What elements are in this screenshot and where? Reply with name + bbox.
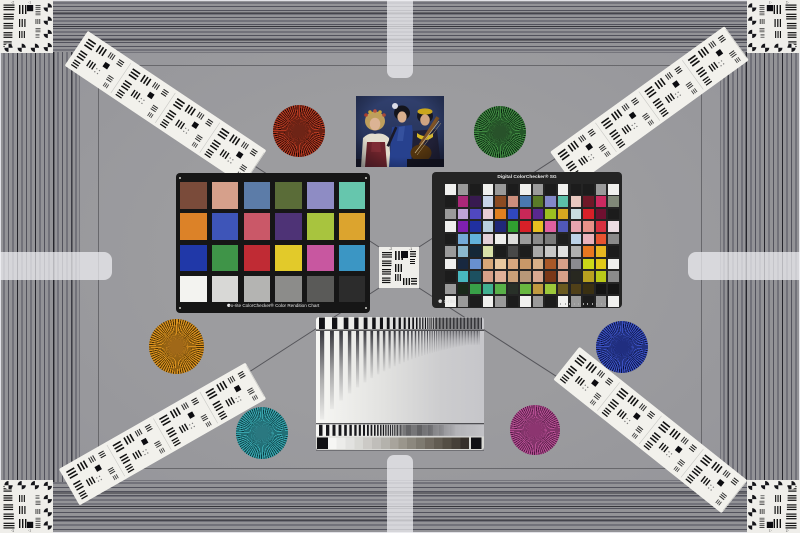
svg-text:-1: -1 [769,528,772,532]
svg-text:-1: -1 [28,528,31,532]
svg-text:-2: -2 [11,528,14,532]
svg-text:-2: -2 [11,1,14,5]
svg-text:-2: -2 [786,1,789,5]
svg-text:-1: -1 [28,1,31,5]
svg-text:-2: -2 [389,247,392,251]
svg-text:-1: -1 [769,1,772,5]
svg-text:-2: -2 [786,528,789,532]
svg-text:-1: -1 [409,247,412,251]
